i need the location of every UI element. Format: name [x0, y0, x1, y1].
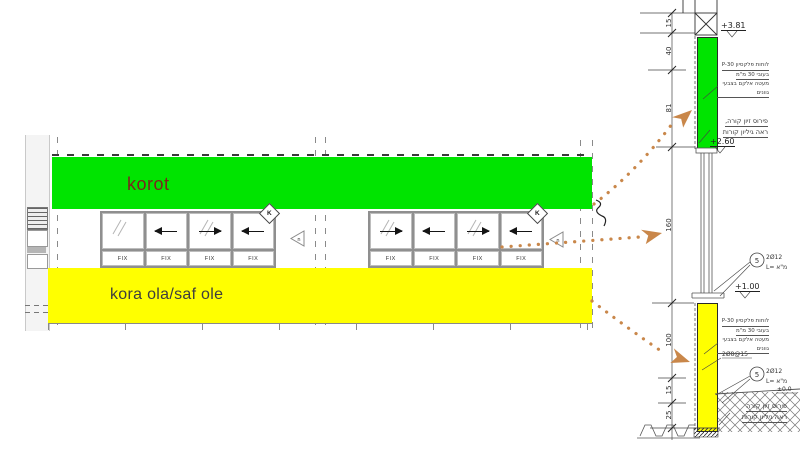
- highlight-leader-trails: [502, 124, 672, 353]
- rebar-tag-bottom: 5 2Ø12 L= מ"א: [750, 367, 787, 385]
- rebar-tag-number: 5: [755, 371, 759, 379]
- dim-label: 15: [665, 19, 673, 28]
- trail-to-beam-section: [594, 124, 672, 204]
- dim-label: 25: [665, 411, 673, 420]
- dim-label: 40: [665, 47, 673, 56]
- ground-level-label: ±0.0: [777, 386, 792, 393]
- level-beam-bottom: +2.60: [710, 137, 735, 147]
- cad-drawing-canvas: korot kora ola/saf ole K FIX FIX FIX FIX: [0, 0, 800, 450]
- rebar-bars-label: 2Ø12: [766, 254, 782, 261]
- level-mark-icon: [727, 31, 737, 37]
- rebar-length-label: L= מ"א: [766, 378, 787, 385]
- dim-label: 160: [665, 218, 673, 231]
- cladding-note-top: לוחות פלקסיון P-30 בעובי 30 מ"מ מעטה אלק…: [717, 61, 769, 98]
- dim-label: 81: [665, 104, 673, 113]
- trail-to-sill-section: [592, 301, 664, 353]
- level-top: +3.81: [721, 21, 746, 31]
- cad-linework: 15 40 81 160 100 15 25: [0, 0, 800, 450]
- level-mark-icon: [740, 292, 750, 298]
- dim-label: 100: [665, 333, 673, 346]
- dim-label: 15: [665, 386, 673, 395]
- rebar-tag-number: 5: [755, 257, 759, 265]
- rebar-tag-top: 5 2Ø12 L= מ"א: [750, 253, 787, 271]
- arrowhead-sill: [656, 349, 690, 362]
- trail-to-window-section: [502, 237, 640, 247]
- dimension-chain: [640, 9, 720, 440]
- rebar-length-label: L= מ"א: [766, 264, 787, 271]
- level-sill: +1.00: [735, 282, 760, 292]
- arrowhead-window: [630, 233, 662, 239]
- rebar-bars-label: 2Ø12: [766, 368, 782, 375]
- beam-reinforcement-note-bottom: פירוס זיון קורה ראה גיליון קורות: [727, 401, 787, 423]
- beam-reinforcement-note-top: פירוס זיון קורה, ראה גיליון קורות: [708, 116, 768, 138]
- break-mark: [596, 200, 606, 226]
- cladding-note-bottom: לוחות פלקסיון P-30 בעובי 30 מ"מ מעטה אלק…: [717, 317, 769, 354]
- castellated-edge: [640, 425, 695, 436]
- section-blocking-box: [683, 0, 717, 35]
